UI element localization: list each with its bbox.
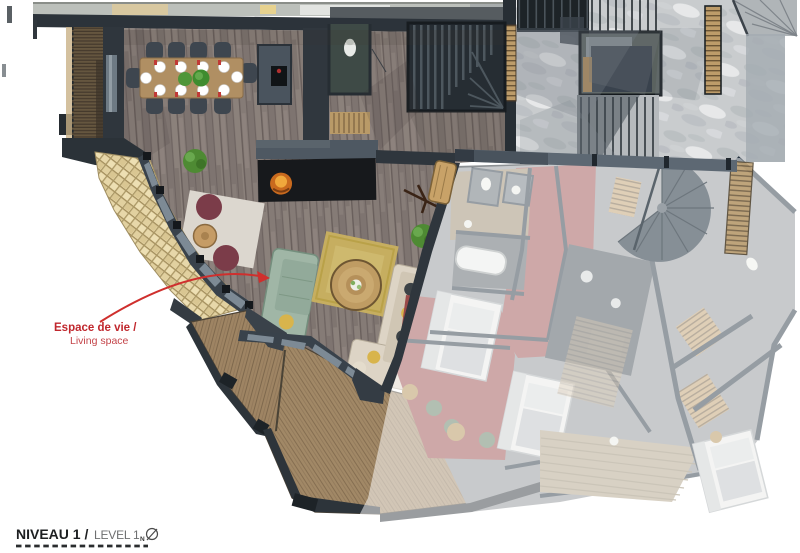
svg-text:Living space: Living space: [70, 335, 129, 347]
svg-text:Espace de vie /: Espace de vie /: [54, 322, 137, 334]
svg-text:N: N: [140, 536, 145, 543]
svg-text:NIVEAU 1 /: NIVEAU 1 /: [16, 526, 88, 542]
svg-text:LEVEL 1: LEVEL 1: [94, 528, 140, 542]
